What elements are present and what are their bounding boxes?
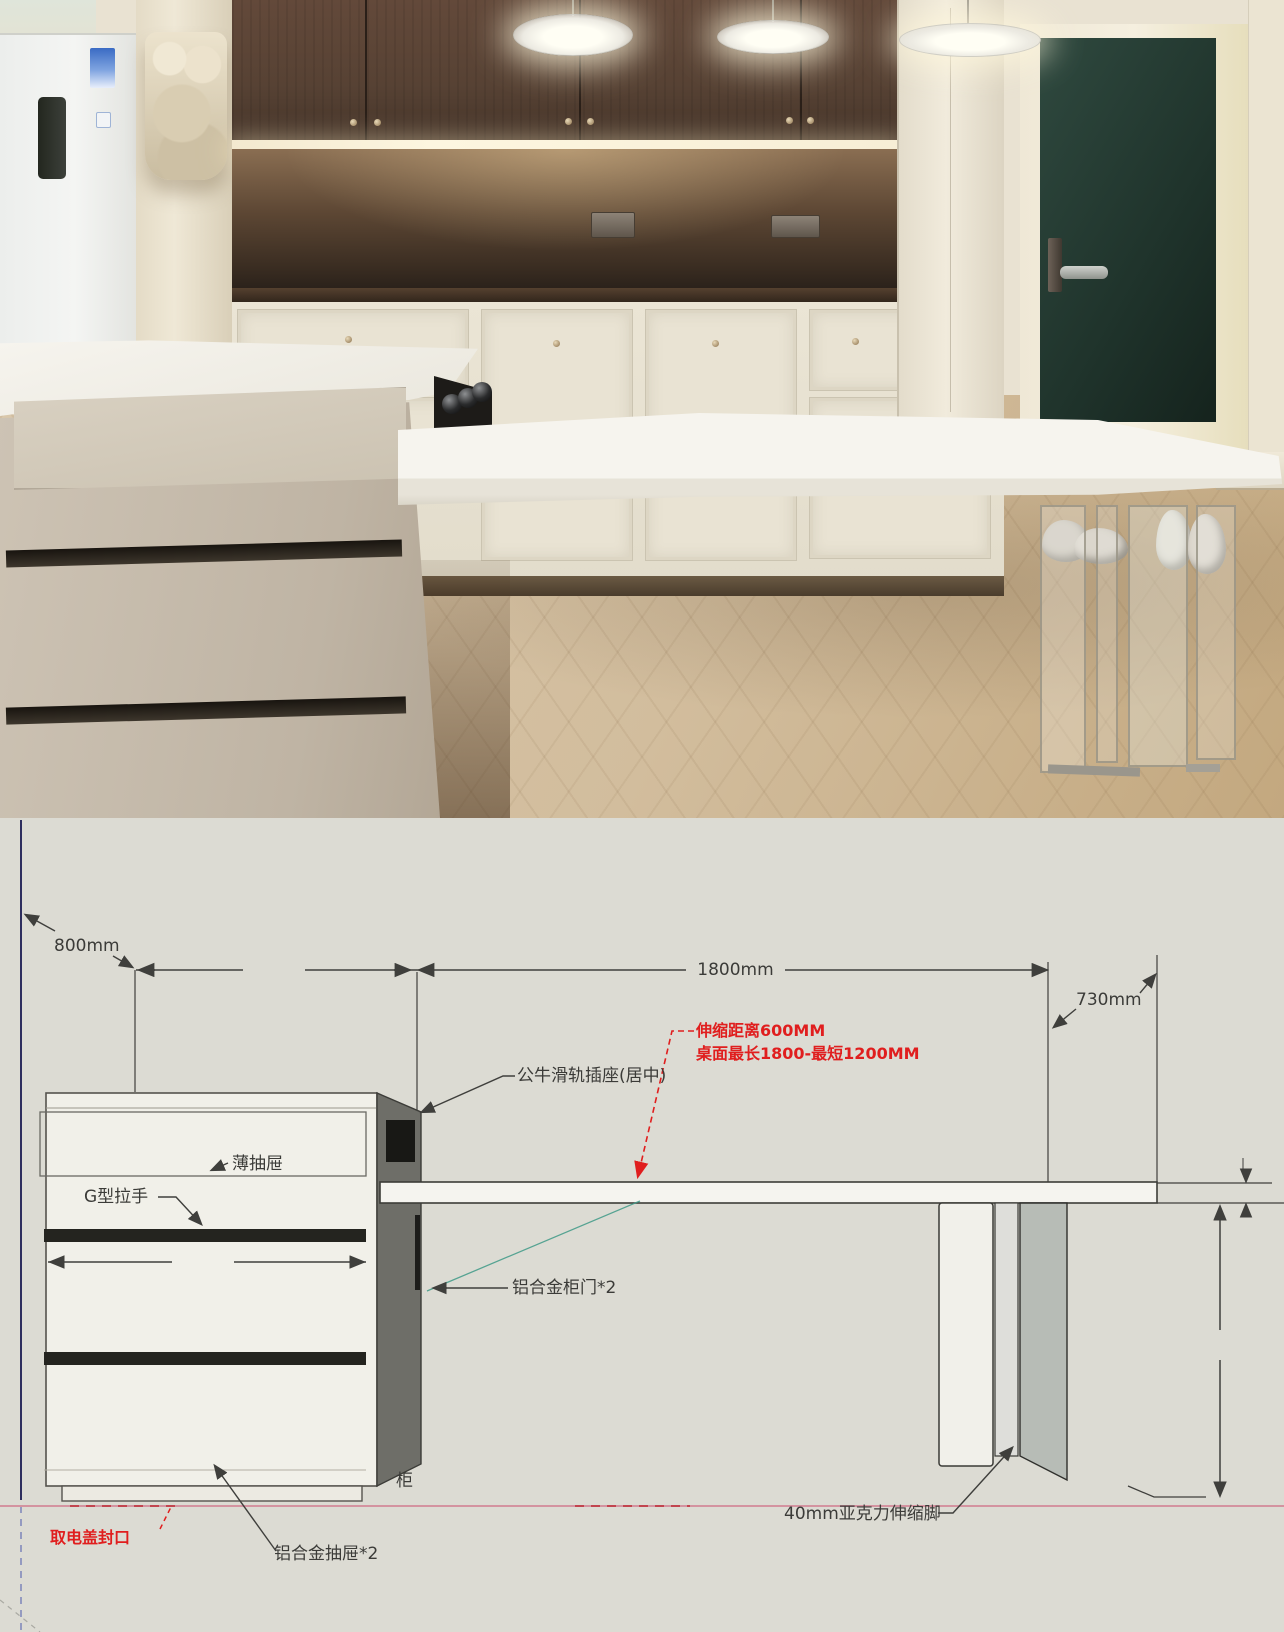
label-alu-drawer: 铝合金抽屉*2 bbox=[274, 1545, 378, 1564]
kitchen-photo bbox=[0, 0, 1284, 818]
base-knob bbox=[852, 338, 859, 345]
label-acrylic-feet: 40mm亚克力伸缩脚 bbox=[784, 1505, 941, 1524]
dim-table-length: 1800mm bbox=[686, 961, 785, 980]
pendant-light bbox=[717, 20, 829, 54]
cabinet-knob bbox=[350, 119, 357, 126]
door-handle bbox=[1060, 266, 1108, 279]
fridge-sticker bbox=[96, 112, 111, 128]
pendant-cord bbox=[772, 0, 774, 22]
diagram-linework bbox=[0, 818, 1284, 1632]
acrylic-leg bbox=[1096, 505, 1118, 763]
wall-socket bbox=[771, 215, 820, 238]
countertop bbox=[232, 288, 1004, 302]
label-inner-cabinet: 柜 bbox=[396, 1472, 413, 1491]
base-knob bbox=[345, 336, 352, 343]
island-thin-drawer bbox=[10, 386, 410, 490]
label-thin-drawer: 薄抽屉 bbox=[232, 1155, 283, 1174]
door-lock-plate bbox=[1048, 238, 1062, 292]
corbel-ornament bbox=[145, 32, 227, 180]
label-power-cover: 取电盖封口 bbox=[50, 1528, 130, 1547]
tall-cabinet-gap bbox=[950, 8, 951, 412]
label-rail-socket: 公牛滑轨插座(居中) bbox=[517, 1067, 666, 1086]
dim-right-offset: 730mm bbox=[1076, 991, 1142, 1010]
fridge bbox=[0, 33, 136, 353]
dim-wall-offset: 800mm bbox=[54, 937, 120, 956]
pendant-light bbox=[899, 23, 1041, 57]
acrylic-leg bbox=[1040, 505, 1086, 773]
green-door bbox=[1040, 38, 1216, 422]
cabinet-knob bbox=[374, 119, 381, 126]
pendant-light bbox=[513, 14, 633, 56]
note-table-range: 桌面最长1800-最短1200MM bbox=[696, 1044, 920, 1063]
leg-foot bbox=[1186, 764, 1220, 772]
cabinet-door-gap bbox=[800, 0, 802, 141]
cabinet-knob bbox=[807, 117, 814, 124]
rail-socket bbox=[472, 382, 492, 402]
under-cabinet-light bbox=[232, 140, 899, 149]
cabinet-knob bbox=[786, 117, 793, 124]
base-knob bbox=[553, 340, 560, 347]
label-alu-door: 铝合金柜门*2 bbox=[512, 1279, 616, 1298]
note-extension-distance: 伸缩距离600MM bbox=[696, 1021, 825, 1040]
design-post-image: 800mm 1800mm 730mm 伸缩距离600MM 桌面最长1800-最短… bbox=[0, 0, 1284, 1632]
fridge-handle bbox=[38, 97, 66, 179]
right-wall bbox=[1248, 0, 1284, 470]
cabinet-knob bbox=[565, 118, 572, 125]
energy-label-sticker bbox=[90, 48, 115, 88]
base-knob bbox=[712, 340, 719, 347]
acrylic-leg bbox=[1128, 505, 1188, 767]
wall-socket bbox=[591, 212, 635, 238]
dimension-diagram: 800mm 1800mm 730mm 伸缩距离600MM 桌面最长1800-最短… bbox=[0, 818, 1284, 1632]
acrylic-leg bbox=[1196, 505, 1236, 760]
cabinet-door-gap bbox=[365, 0, 367, 141]
cabinet-knob bbox=[587, 118, 594, 125]
label-g-handle: G型拉手 bbox=[84, 1188, 148, 1207]
pendant-cord bbox=[967, 0, 969, 24]
